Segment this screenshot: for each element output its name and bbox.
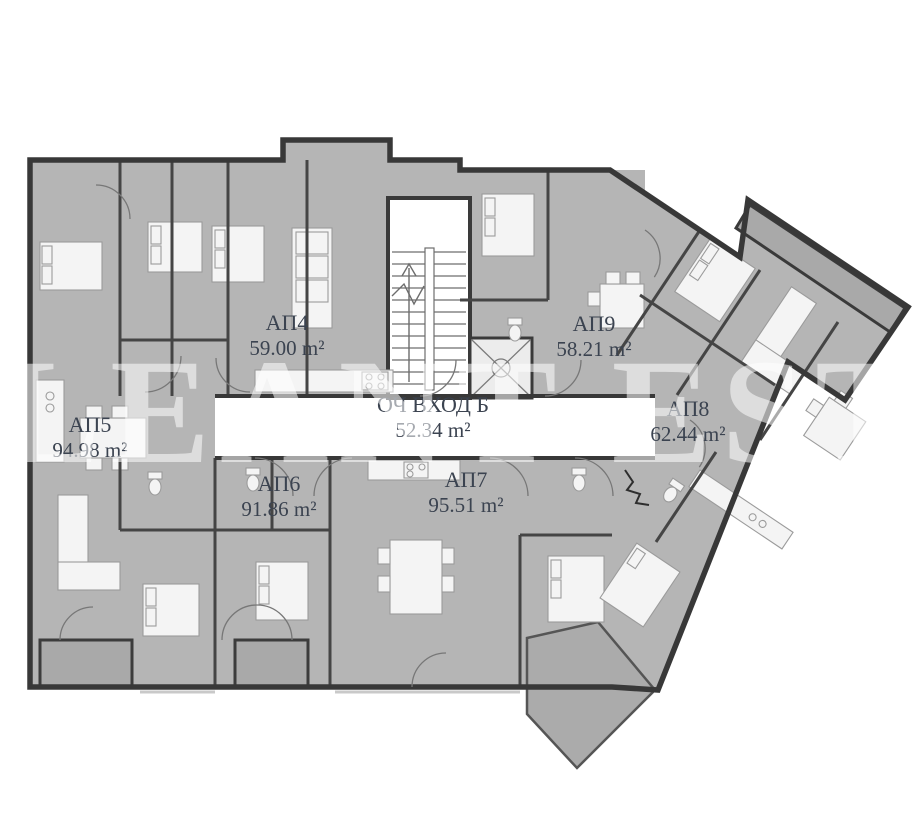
bed [482, 194, 534, 256]
floor-plan-drawing: АП4 59.00 m² АП5 94.98 m² АП6 91.86 m² А… [0, 0, 914, 823]
bed [212, 226, 264, 282]
bed [148, 222, 202, 272]
watermark-text: ALEANT ESTA [0, 329, 914, 495]
balcony-left-2 [235, 640, 308, 686]
bed [256, 562, 308, 620]
label-ap7-area: 95.51 m² [428, 493, 503, 517]
bed [548, 556, 604, 622]
floor-plan-page: АП4 59.00 m² АП5 94.98 m² АП6 91.86 m² А… [0, 0, 914, 823]
balcony-left-1 [40, 640, 132, 686]
bed [143, 584, 199, 636]
label-ap6-area: 91.86 m² [241, 497, 316, 521]
bed [40, 242, 102, 290]
